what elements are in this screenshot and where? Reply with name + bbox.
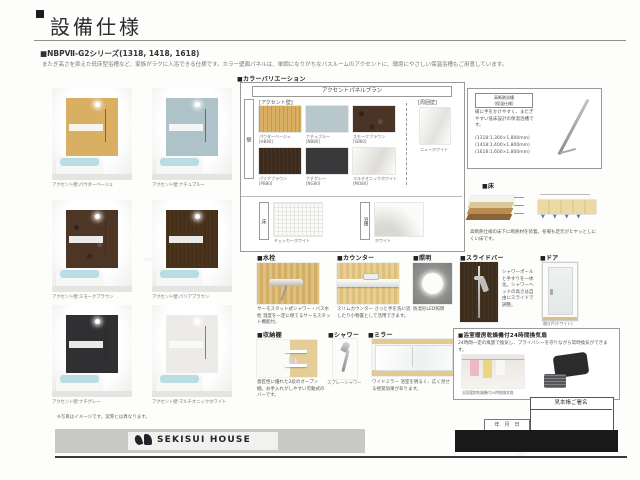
mirror-strip — [169, 341, 203, 349]
shower-caption: スプレーシャワー — [327, 380, 361, 386]
bathtub-swatch — [375, 203, 423, 236]
mirror-title: ワイドミラー — [372, 380, 399, 385]
shower-head — [479, 277, 489, 292]
bathtub — [56, 373, 102, 392]
shelf-section-label: ■収納棚 — [257, 330, 282, 339]
faucet-photo — [257, 263, 319, 304]
door-caption: 開き戸(ホワイト) — [543, 321, 572, 327]
door-section-label: ■ドア — [540, 253, 559, 262]
bath-water — [160, 158, 199, 166]
drying-photo-caption: 浴室暖房乾燥機付24時間換気扇 — [462, 390, 513, 396]
slidebar-photo — [460, 262, 498, 322]
color-swatch — [306, 148, 348, 174]
bath-floor — [52, 286, 132, 292]
wood-trim-top — [372, 339, 454, 344]
floor-swatch — [274, 203, 322, 236]
bathroom-caption: アクセント壁:ナチュブルー — [152, 182, 205, 188]
floor-description: 高断熱仕様の床下に断熱材を装着。冬場も足元がヒヤッとしにくい床です。 — [470, 230, 598, 243]
color-swatch — [353, 148, 395, 174]
shelf-description: 意匠性に優れた2段のオープン棚。お手入れがしやすい可動式のバーです。 — [257, 380, 327, 400]
shower-column — [205, 109, 207, 143]
shelf-photo — [257, 340, 317, 377]
shower-column — [105, 109, 107, 143]
swatch-code: [HB80] — [259, 139, 273, 145]
mirror-text: ワイドミラー 浴室を明るく、広く見せる視覚効果があります。 — [372, 380, 454, 393]
footer-rule — [55, 456, 627, 458]
color-swatch — [259, 148, 301, 174]
shower-handle — [341, 350, 349, 372]
bathroom-caption: アクセント壁:スモークブラウン — [52, 294, 113, 300]
ceiling-light — [195, 102, 200, 107]
slidebar-description: シャワーポールと手すりを一体化。シャワーヘッドの高さは自由にスライドで調整。 — [502, 270, 535, 309]
ceiling-light — [195, 319, 200, 324]
bathtub-size: (1318:1,300×1,800mm) — [475, 136, 530, 143]
heat-arrows: ▼▼▼▼ — [541, 214, 588, 220]
shower-column — [105, 221, 107, 255]
bathtub-description: 縁に手をかけやすく、またぎやすい低床設計の保温浴槽です。 — [475, 110, 537, 130]
bathtub — [56, 156, 102, 175]
bathtub-size: (1418:1,400×1,800mm) — [475, 143, 530, 150]
mirror-strip — [69, 236, 103, 244]
bathtub — [156, 373, 202, 392]
counter-faucet — [363, 273, 379, 280]
towel-pink — [470, 360, 479, 376]
bathroom-photo — [152, 200, 232, 292]
color-swatch — [259, 106, 301, 132]
faucet-description: 温度を一定に保てるサーモスタット機能付。 — [257, 314, 330, 326]
led-light — [422, 273, 443, 294]
bathroom-photo — [52, 88, 132, 180]
badge-line1: 高断熱浴槽 — [494, 95, 514, 100]
accent-wall — [166, 315, 217, 373]
ceiling-light — [95, 319, 100, 324]
floor-layer-base — [466, 214, 513, 220]
page-title: 設備仕様 — [50, 11, 142, 40]
brand-bar: SEKISUI HOUSE — [55, 429, 365, 453]
footer-black-bar — [455, 430, 618, 452]
swatch-code: [PB80] — [259, 181, 272, 187]
door-handle — [550, 289, 553, 295]
wide-mirror — [375, 345, 453, 371]
counter-title: スリムカウンター — [337, 307, 373, 312]
swatch-code: [NG80] — [306, 181, 320, 187]
bath-water — [60, 375, 99, 383]
surround-wall-swatch — [420, 108, 450, 144]
bathroom-photo — [52, 305, 132, 397]
surround-wall-name: ニューホワイト — [420, 147, 448, 153]
accent-wall — [166, 98, 217, 156]
spec-sheet-page: ン ン ン 設備仕様 ■NBPⅦ-G2シリーズ(1318, 1418, 1618… — [0, 0, 640, 480]
light-section-label: ■照明 — [413, 253, 432, 262]
fan-grille — [544, 374, 566, 388]
bath-floor — [52, 174, 132, 180]
counter-section-label: ■カウンター — [337, 253, 374, 262]
towel-white — [496, 360, 505, 375]
slide-bar — [478, 266, 480, 318]
faucet-section-label: ■水栓 — [257, 253, 276, 262]
mirror-joint — [412, 347, 413, 367]
ceiling-light — [95, 214, 100, 219]
surround-wall-label: [周囲壁] — [418, 99, 437, 106]
swatch-separator — [406, 103, 407, 185]
mirror-strip — [69, 341, 103, 349]
wall-vertical-label: 壁 — [244, 99, 254, 179]
accent-wall — [166, 210, 217, 268]
color-swatch — [306, 106, 348, 132]
swatch-code: [SB80] — [353, 139, 367, 145]
bath-floor — [152, 391, 232, 397]
towel-yellow — [483, 360, 492, 378]
badge-line2: (保温仕様) — [494, 101, 513, 106]
light-photo — [413, 263, 452, 304]
ventilation-label: ■浴室暖房乾燥機付24時間換気扇 — [458, 331, 547, 339]
shower-section-label: ■シャワー — [328, 330, 359, 339]
color-box-divider — [241, 196, 462, 197]
bathtub — [156, 156, 202, 175]
faucet-text: サーモスタット式シャワー・バス水栓 温度を一定に保てるサーモスタット機能付。 — [257, 307, 331, 327]
shower-column — [105, 326, 107, 360]
floor-callout-line — [514, 213, 524, 214]
open-shelf — [285, 350, 307, 353]
bath-water — [60, 158, 99, 166]
counter-shelf — [337, 279, 399, 287]
bath-floor — [52, 391, 132, 397]
shower-photo — [333, 339, 357, 379]
shower-column — [205, 221, 207, 255]
bathroom-photo — [152, 305, 232, 397]
mirror-strip — [169, 236, 203, 244]
accent-panel-plan-header: アクセントパネルプラン — [252, 86, 452, 97]
light-caption: 防湿形LED照明 — [413, 307, 457, 314]
drying-room-photo — [462, 355, 524, 388]
bathroom-caption: アクセント壁:マルチオニックホワイト — [152, 399, 226, 405]
series-description: またぎ高さを抑えた低床型浴槽など、家族がラクに入浴できる仕様です。カラー壁面パネ… — [42, 60, 507, 68]
bath-water — [160, 375, 199, 383]
bathroom-photo — [52, 200, 132, 292]
open-shelf — [285, 364, 307, 367]
photo-disclaimer: ※写真はイメージです。実際とは異なります。 — [57, 414, 150, 420]
floor-callout-line — [514, 205, 524, 206]
mirror-strip — [69, 124, 103, 132]
bath-water — [160, 270, 199, 278]
floor-vertical-label: 床 — [259, 202, 269, 240]
shower-hose — [281, 285, 288, 301]
counter-text: スリムカウンター さっと手を洗い流したり小物置として活用できます。 — [337, 307, 411, 320]
counter-photo — [337, 263, 399, 304]
floor-callout-line — [540, 194, 590, 195]
floor-callout-line — [514, 197, 524, 198]
accent-wall-label: [アクセント壁] — [259, 99, 293, 106]
mirror-section-label: ■ミラー — [368, 330, 393, 339]
title-rule — [34, 40, 626, 41]
floor-section-label: ■床 — [482, 181, 494, 190]
color-swatch — [353, 106, 395, 132]
bathtub-vertical-label: 浴槽 — [360, 202, 370, 240]
bathroom-photo — [152, 88, 232, 180]
mirror-strip — [169, 124, 203, 132]
floor-warmth-diagram — [538, 200, 596, 214]
floor-swatch-name: チェッカーホワイト — [274, 238, 310, 244]
mirror-photo — [372, 339, 454, 376]
shower-column — [205, 326, 207, 360]
signature-header: 見本帳ご署名 — [530, 397, 612, 410]
series-heading: ■NBPⅦ-G2シリーズ(1318, 1418, 1618) — [40, 48, 199, 59]
accent-wall — [66, 98, 117, 156]
bathtub — [56, 268, 102, 287]
bathtub-badge: 高断熱浴槽 (保温仕様) — [475, 93, 533, 108]
bathtub — [156, 268, 202, 287]
bath-floor — [152, 174, 232, 180]
door-threshold — [543, 317, 577, 320]
bathroom-caption: アクセント壁:パリアブラウン — [152, 294, 209, 300]
door-photo — [542, 262, 578, 321]
bottle — [294, 358, 297, 364]
bathtub-size: (1618:1,600×1,800mm) — [475, 150, 530, 157]
bath-water — [60, 270, 99, 278]
accent-wall — [66, 210, 117, 268]
ceiling-light — [195, 214, 200, 219]
bathroom-caption: アクセント壁:ナチグレー — [52, 399, 100, 405]
swatch-code: [NB80] — [306, 139, 320, 145]
slidebar-section-label: ■スライドバー — [460, 253, 504, 262]
ceiling-light — [95, 102, 100, 107]
corner-square-mark — [36, 10, 44, 18]
bathroom-caption: アクセント壁:パウダーベージュ — [52, 182, 113, 188]
swatch-code: [MO80] — [353, 181, 368, 187]
fan-unit-photo — [540, 352, 596, 392]
bottle — [289, 357, 292, 364]
bathtub-swatch-name: ホワイト — [375, 238, 391, 244]
bath-floor — [152, 286, 232, 292]
accent-wall — [66, 315, 117, 373]
brand-name: SEKISUI HOUSE — [157, 435, 251, 445]
